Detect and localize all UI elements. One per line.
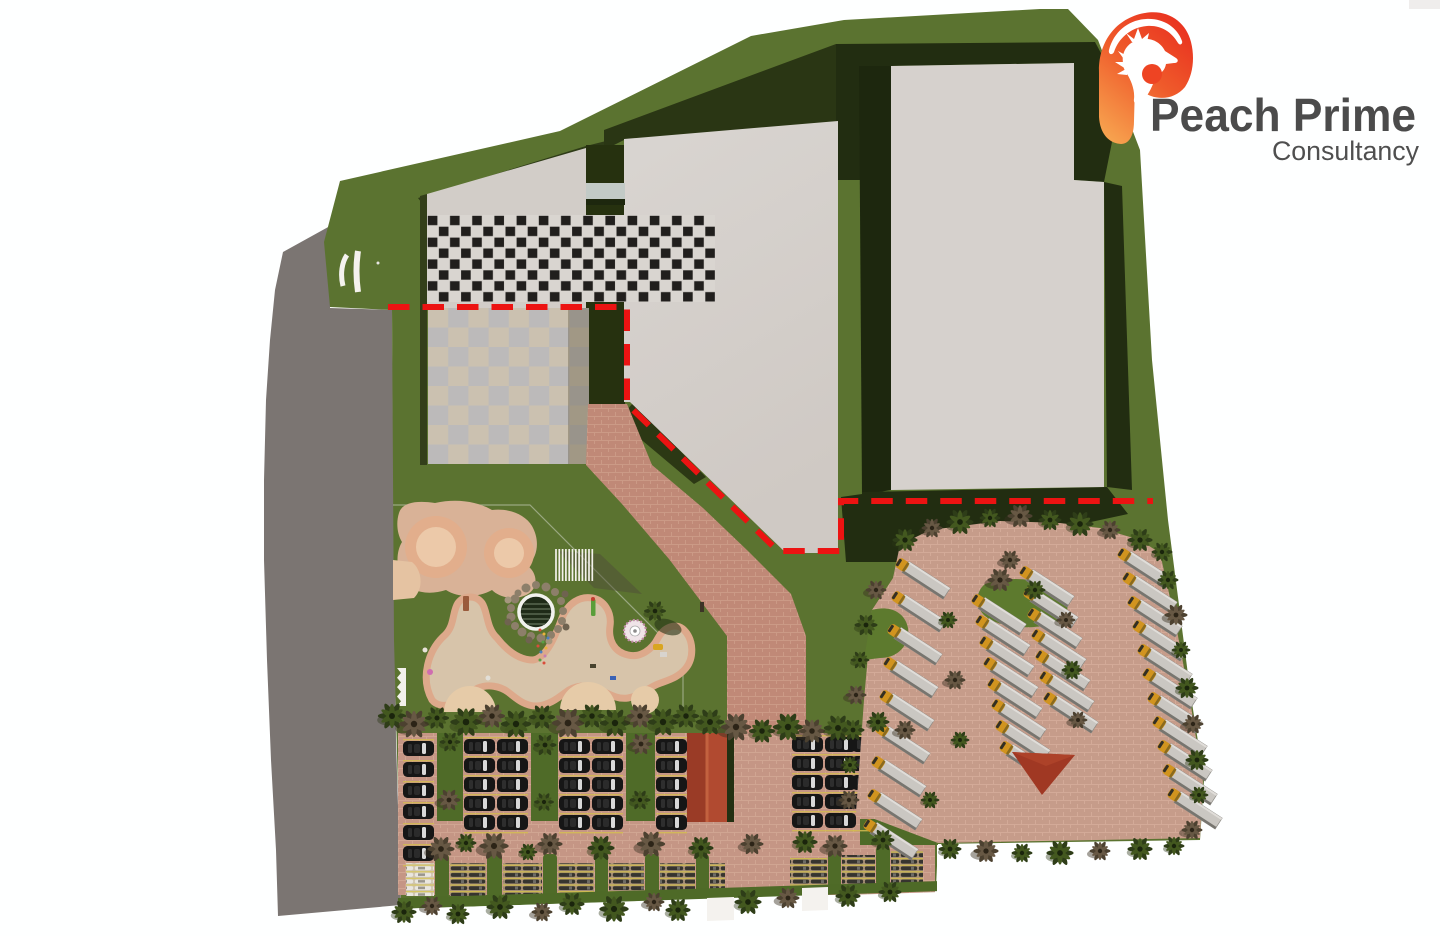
- svg-text:Peach Prime: Peach Prime: [1150, 89, 1416, 141]
- svg-text:Consultancy: Consultancy: [1272, 136, 1419, 166]
